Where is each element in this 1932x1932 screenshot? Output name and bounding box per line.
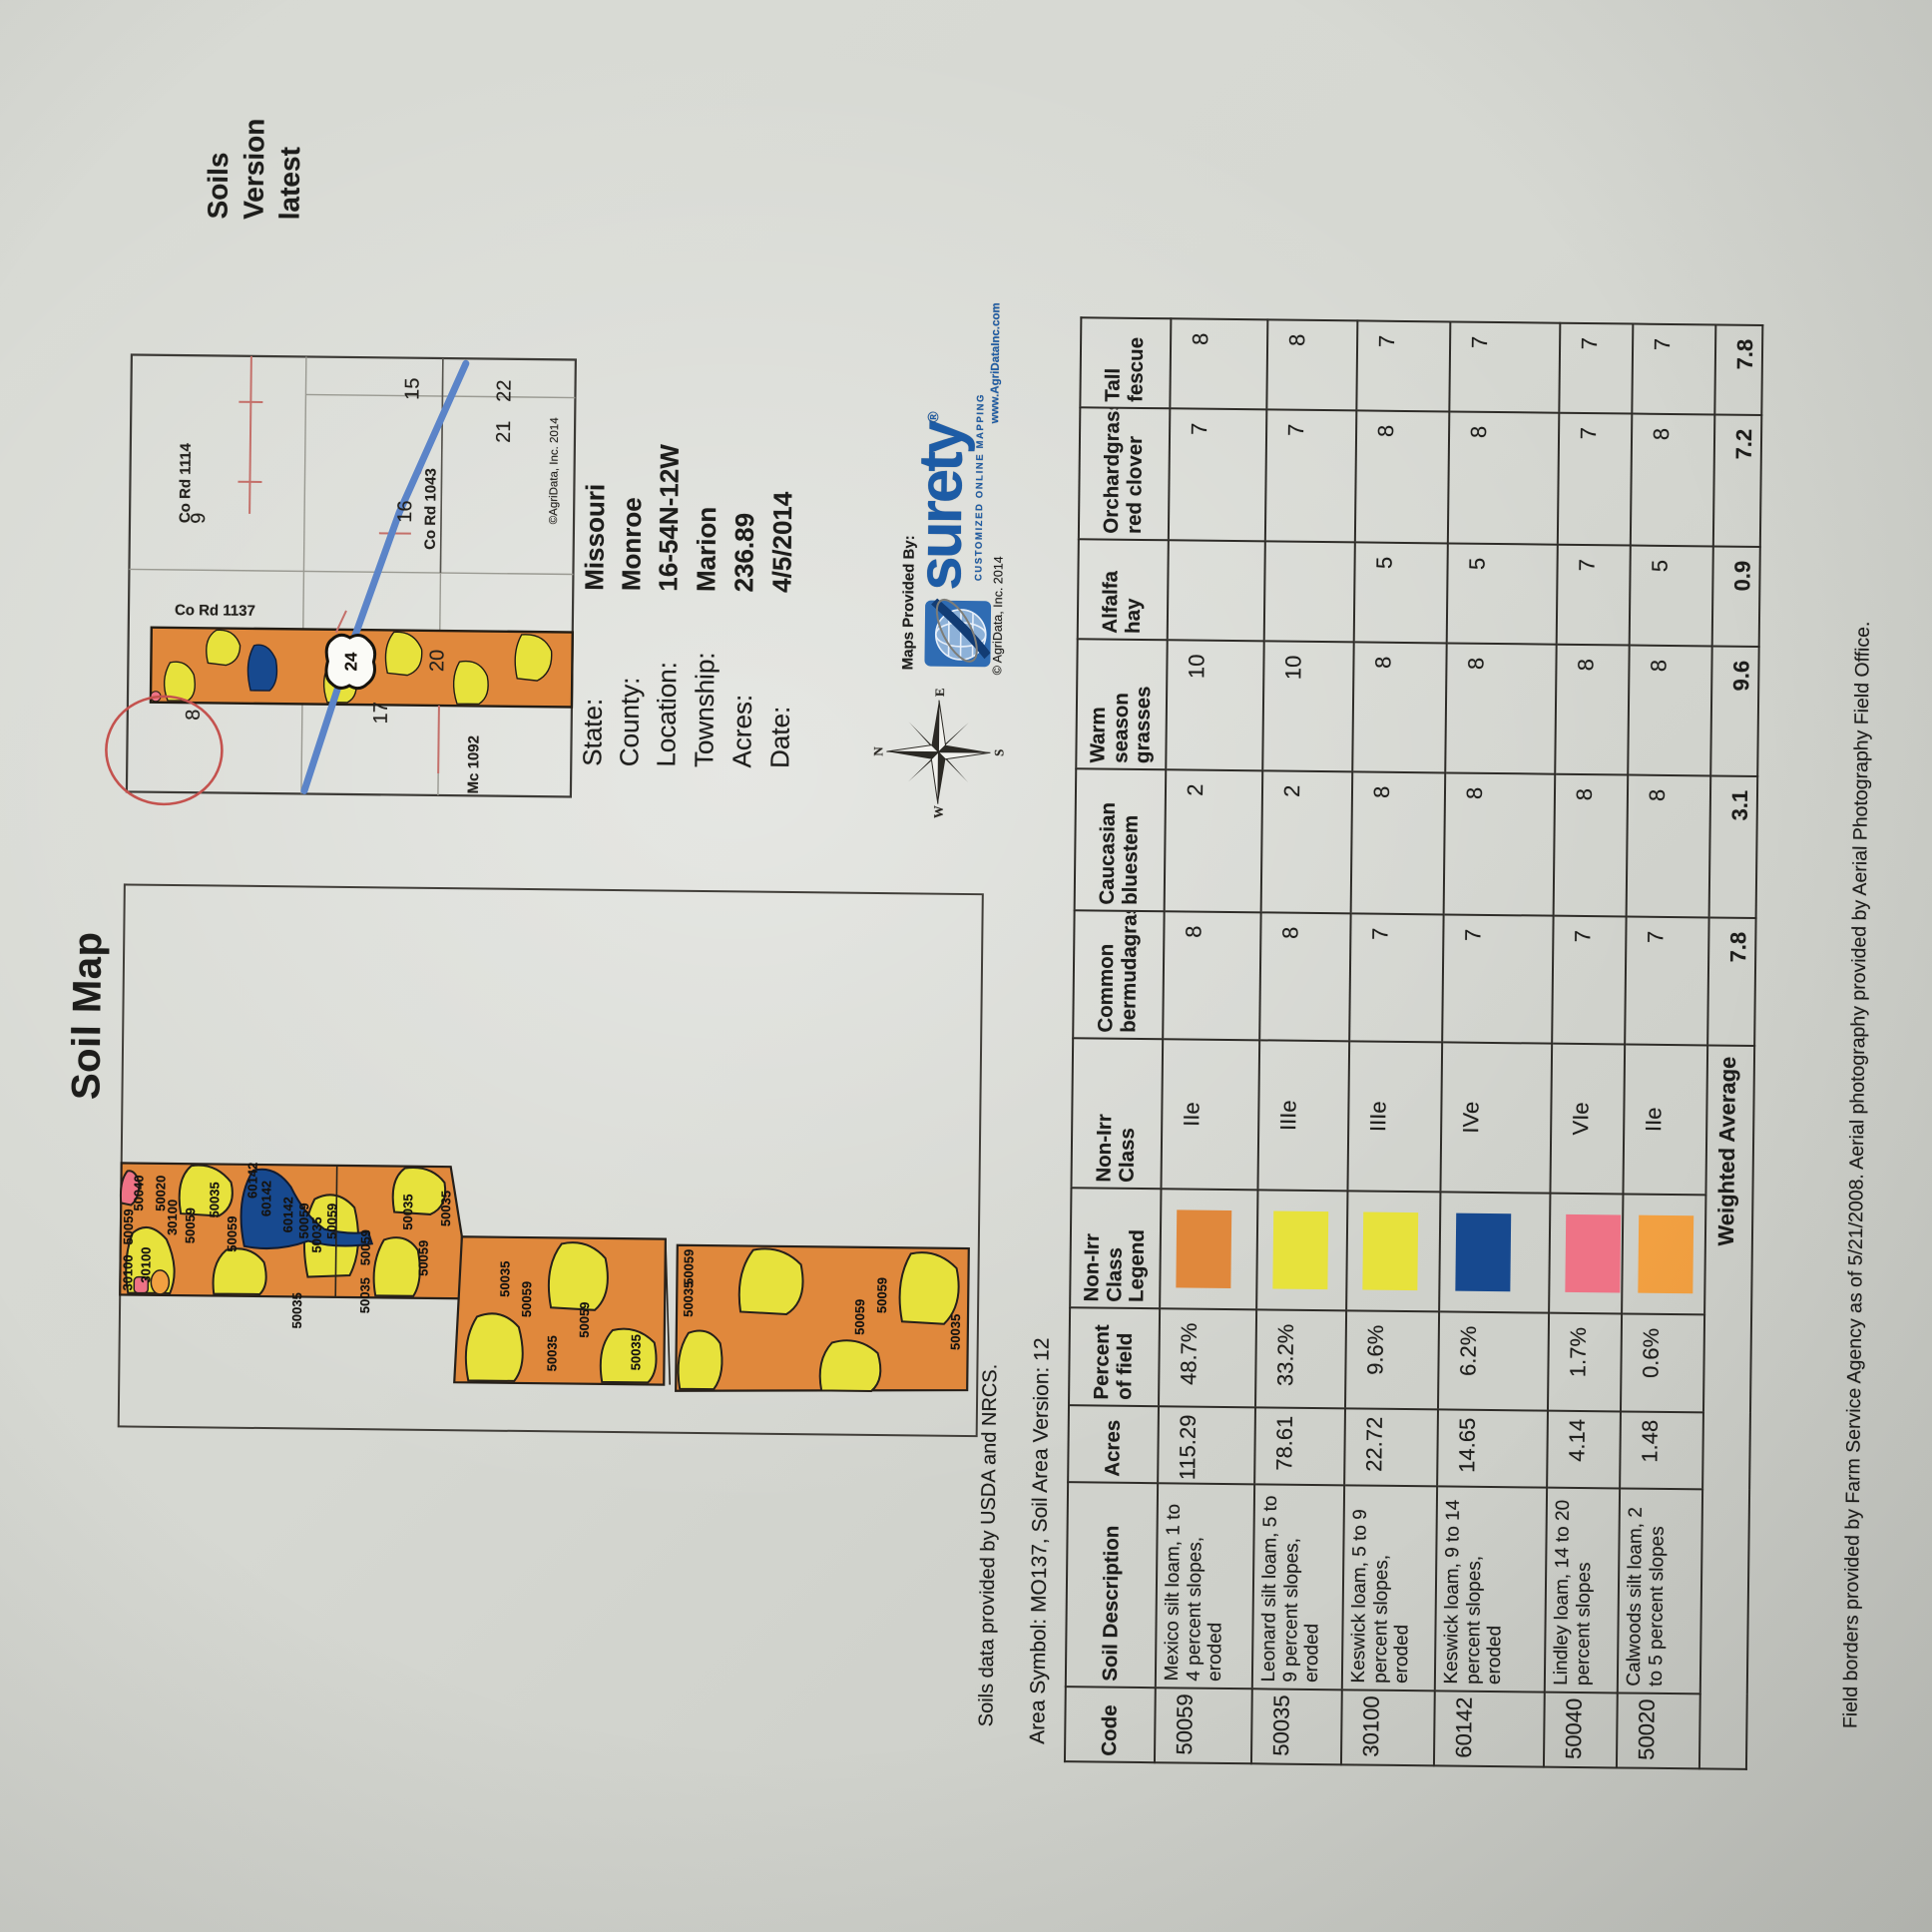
section-number: 8 — [183, 710, 205, 721]
road-label-co-rd-1114: Co Rd 1114 — [177, 442, 195, 523]
column-header: Tall fescue — [1080, 317, 1171, 408]
info-value: 16-54N-12W — [653, 444, 686, 592]
table-cell: 8 — [1352, 642, 1446, 772]
table-cell — [1264, 541, 1355, 642]
table-cell: 8 — [1444, 772, 1556, 915]
table-cell: 8 — [1631, 414, 1714, 547]
table-cell: 33.2% — [1255, 1309, 1346, 1408]
table-row: 60142Keswick loam, 9 to 14 percent slope… — [1434, 321, 1560, 1766]
soil-code-label: 50059 — [415, 1240, 430, 1276]
table-cell: Leonard silt loam, 5 to 9 percent slopes… — [1252, 1484, 1344, 1690]
table-cell: 8 — [1555, 645, 1629, 775]
section-number: 17 — [370, 702, 392, 724]
table-cell: Keswick loam, 5 to 9 percent slopes, ero… — [1342, 1485, 1437, 1690]
page-title: Soil Map — [64, 931, 111, 1100]
soil-code-label: 50059 — [324, 1204, 339, 1239]
table-cell: 7 — [1625, 917, 1708, 1046]
compass-w: W — [931, 805, 946, 818]
compass-star — [886, 700, 991, 804]
table-cell: 7 — [1559, 323, 1633, 414]
table-cell: 8 — [1170, 318, 1267, 409]
table-cell: IVe — [1440, 1042, 1552, 1193]
soil-code-label: 50059 — [577, 1301, 592, 1337]
table-row: 50059Mexico silt loam, 1 to 4 percent sl… — [1155, 318, 1267, 1763]
weighted-average-value: 9.6 — [1710, 646, 1758, 776]
agridata-copyright: © AgriData, Inc. 2014 — [990, 556, 1005, 675]
info-value: Marion — [691, 507, 723, 593]
highway-24-shield: 24 — [326, 635, 375, 689]
table-cell: 7 — [1449, 321, 1560, 412]
road-label-co-rd-1043: Co Rd 1043 — [422, 468, 440, 550]
locator-copyright: ©AgriData, Inc. 2014 — [548, 417, 561, 525]
table-cell: Mexico silt loam, 1 to 4 percent slopes,… — [1156, 1483, 1254, 1689]
table-cell: 5 — [1354, 542, 1448, 643]
header-line-soils: Soils — [200, 118, 237, 220]
soil-map-box: 3010050059500403010050020301005005950035… — [118, 883, 984, 1437]
legend-color-chip — [1455, 1213, 1511, 1292]
soil-map-field: 3010050059500403010050020301005005950035… — [117, 884, 983, 1438]
soil-map-document: Soil Map Soils Version latest — [0, 0, 1932, 1932]
legend-color-chip — [1362, 1212, 1418, 1291]
compass-s: S — [991, 749, 1005, 756]
column-header: Caucasian bluestem — [1075, 768, 1167, 911]
table-cell: IIIe — [1347, 1041, 1442, 1192]
table-cell: 7 — [1552, 916, 1626, 1045]
table-cell: 8 — [1445, 643, 1556, 773]
legend-color-cell — [1549, 1194, 1623, 1314]
surety-tagline: CUSTOMIZED ONLINE MAPPING — [973, 393, 986, 581]
soil-code-label: 50035 — [497, 1261, 512, 1297]
info-value: 236.89 — [728, 513, 760, 593]
info-label: County: — [614, 677, 645, 766]
column-header: Non-Irr Class Legend — [1070, 1188, 1161, 1308]
svg-text:24: 24 — [341, 652, 360, 672]
info-value: Monroe — [616, 497, 648, 591]
table-cell: 8 — [1448, 411, 1559, 544]
info-label: State: — [577, 699, 608, 766]
weighted-average-value: 7.8 — [1707, 917, 1755, 1046]
soil-code-label: 50035 — [681, 1281, 696, 1317]
soil-code-label: 50059 — [874, 1277, 889, 1313]
header-line-latest: latest — [271, 119, 308, 221]
road-label-mc-1092: Mc 1092 — [465, 735, 483, 794]
info-label: Acres: — [726, 695, 757, 768]
column-header: Soil Description — [1066, 1482, 1158, 1688]
table-cell: 7 — [1265, 409, 1356, 542]
section-number: 16 — [394, 500, 416, 522]
soils-version-header: Soils Version latest — [200, 118, 308, 220]
legend-color-chip — [1565, 1214, 1621, 1293]
weighted-average-value: 0.9 — [1712, 546, 1760, 647]
soil-code-label: 50059 — [358, 1229, 373, 1265]
compass-n: N — [872, 746, 886, 756]
table-cell — [1168, 540, 1265, 641]
table-cell: 1.7% — [1548, 1313, 1622, 1412]
soil-code-label: 50035 — [289, 1292, 304, 1328]
weighted-average-value: 3.1 — [1709, 775, 1758, 918]
column-header: Percent of field — [1069, 1307, 1160, 1406]
column-header: Common bermudagrass — [1073, 910, 1164, 1039]
table-cell: 115.29 — [1158, 1406, 1255, 1484]
soil-code-label: 50059 — [519, 1281, 534, 1317]
soil-code-label: 50059 — [852, 1299, 867, 1335]
table-cell: 6.2% — [1438, 1311, 1549, 1410]
table-cell: 7 — [1349, 913, 1443, 1042]
table-cell: 4.14 — [1547, 1411, 1621, 1489]
table-cell: 8 — [1627, 775, 1711, 918]
soil-code-label: 50035 — [207, 1182, 222, 1217]
table-cell: 8 — [1554, 774, 1629, 917]
table-cell: 2 — [1261, 770, 1353, 913]
soils-data-note: Soils data provided by USDA and NRCS. — [975, 1364, 1002, 1727]
soil-code-label: 50035 — [309, 1216, 324, 1252]
weighted-average-value: 7.8 — [1714, 324, 1762, 415]
soil-code-label: 50035 — [948, 1314, 963, 1350]
table-cell: Calwoods silt loam, 2 to 5 percent slope… — [1618, 1488, 1702, 1693]
table-cell: 8 — [1266, 319, 1357, 410]
column-header: Acres — [1068, 1405, 1159, 1483]
soil-code-label: 50035 — [544, 1335, 559, 1371]
soil-code-label: 50040 — [131, 1175, 146, 1210]
info-value: 4/5/2014 — [766, 491, 798, 593]
locator-map-svg: 24 Co Rd 1114 Co Rd 1137 Co Rd 1043 Mc 1… — [86, 340, 591, 835]
column-header: Code — [1065, 1687, 1156, 1762]
table-cell: 50059 — [1155, 1688, 1252, 1763]
red-circle-annotation — [106, 696, 223, 804]
table-cell: IIe — [1161, 1039, 1259, 1190]
table-cell: 50020 — [1617, 1692, 1700, 1768]
photo-of-document: Soil Map Soils Version latest — [0, 0, 1932, 1932]
road-label-co-rd-1137: Co Rd 1137 — [175, 602, 255, 620]
table-cell: 50035 — [1251, 1689, 1342, 1764]
table-cell: 5 — [1630, 546, 1713, 647]
table-cell: Lindley loam, 14 to 20 percent slopes — [1545, 1488, 1620, 1693]
soil-code-label: 50059 — [183, 1207, 198, 1243]
header-line-version: Version — [236, 118, 272, 220]
weighted-average-label: Weighted Average — [1699, 1045, 1754, 1768]
table-cell: 7 — [1356, 320, 1450, 411]
surety-wordmark: surety® — [901, 411, 973, 591]
soil-code-label: 50035 — [357, 1277, 372, 1313]
table-cell: 1.48 — [1620, 1411, 1703, 1489]
table-cell: 5 — [1447, 543, 1558, 644]
column-header: Warm season grasses — [1076, 639, 1167, 769]
soils-table-body: 50059Mexico silt loam, 1 to 4 percent sl… — [1155, 318, 1762, 1769]
table-cell: 48.7% — [1159, 1308, 1256, 1407]
legend-color-cell — [1346, 1191, 1440, 1311]
soil-code-label: 30100 — [120, 1254, 135, 1290]
table-cell: Keswick loam, 9 to 14 percent slopes, er… — [1435, 1486, 1547, 1691]
table-cell: IIe — [1623, 1044, 1707, 1195]
soil-code-label: 50059 — [121, 1208, 136, 1244]
table-cell: 7 — [1557, 545, 1631, 646]
info-label: Location: — [651, 662, 682, 767]
soil-code-label: 50035 — [438, 1191, 453, 1226]
soil-code-label: 60142 — [258, 1181, 273, 1216]
legend-color-cell — [1439, 1192, 1550, 1312]
table-cell: 78.61 — [1254, 1407, 1345, 1485]
info-label: Township: — [689, 652, 720, 767]
table-cell: IIIe — [1257, 1040, 1349, 1191]
table-cell: 8 — [1259, 912, 1350, 1041]
table-cell: 7 — [1442, 914, 1553, 1043]
table-cell: 8 — [1351, 771, 1446, 914]
locator-map: 24 Co Rd 1114 Co Rd 1137 Co Rd 1043 Mc 1… — [86, 340, 591, 835]
legend-color-cell — [1622, 1194, 1705, 1314]
info-label: Date: — [764, 707, 795, 768]
table-cell: 8 — [1355, 410, 1449, 543]
table-cell: 22.72 — [1344, 1408, 1438, 1486]
soil-code-label: 30100 — [138, 1246, 153, 1282]
column-header: Alfalfa hay — [1078, 539, 1169, 640]
legend-color-cell — [1160, 1189, 1257, 1309]
legend-color-chip — [1638, 1215, 1693, 1294]
table-cell: 10 — [1166, 640, 1263, 770]
table-cell: 2 — [1165, 769, 1263, 912]
table-cell: 10 — [1262, 641, 1353, 771]
section-number: 9 — [188, 513, 210, 524]
table-cell: 14.65 — [1437, 1409, 1548, 1487]
table-cell: 30100 — [1341, 1690, 1435, 1765]
soils-table-header: CodeSoil DescriptionAcresPercent of fiel… — [1065, 317, 1171, 1762]
soil-code-label: 50035 — [400, 1194, 415, 1229]
soil-code-label: 50059 — [225, 1215, 240, 1251]
compass-rose: N E S W — [872, 686, 1005, 818]
legend-color-chip — [1272, 1211, 1328, 1290]
info-value: Missouri — [579, 484, 611, 591]
legend-color-chip — [1176, 1209, 1231, 1288]
table-cell: 60142 — [1434, 1690, 1545, 1766]
table-cell: 0.6% — [1621, 1313, 1704, 1412]
table-cell: 7 — [1169, 408, 1266, 541]
table-cell: 7 — [1632, 324, 1715, 415]
table-cell: 8 — [1628, 646, 1711, 776]
section-number: 20 — [426, 650, 448, 672]
area-symbol-line: Area Symbol: MO137, Soil Area Version: 1… — [1026, 1337, 1055, 1744]
table-cell: 50040 — [1544, 1692, 1618, 1768]
column-header: Non-Irr Class — [1071, 1038, 1163, 1189]
section-number: 22 — [493, 379, 515, 401]
table-row: 30100Keswick loam, 5 to 9 percent slopes… — [1341, 320, 1450, 1765]
table-row: 50035Leonard silt loam, 5 to 9 percent s… — [1251, 319, 1357, 1764]
legend-color-cell — [1256, 1190, 1347, 1310]
soil-code-label: 50059 — [681, 1249, 696, 1285]
section-number: 15 — [401, 377, 423, 399]
agridata-website: www.AgriDataInc.com — [989, 302, 1002, 423]
soil-code-label: 60142 — [280, 1197, 295, 1232]
table-cell: 9.6% — [1345, 1310, 1439, 1409]
table-cell: 8 — [1163, 911, 1260, 1040]
footer-note: Field borders provided by Farm Service A… — [1839, 621, 1875, 1728]
compass-e: E — [932, 688, 947, 697]
surety-globe-icon — [920, 594, 1000, 669]
surety-logo-block: Maps Provided By: surety® CUSTOMIZED ONL… — [894, 310, 1016, 681]
section-number: 21 — [493, 420, 515, 442]
soils-table: CodeSoil DescriptionAcresPercent of fiel… — [1064, 316, 1763, 1770]
table-cell: 7 — [1558, 413, 1632, 546]
column-header: Orchardgrass red clover — [1079, 407, 1170, 540]
weighted-average-value: 7.2 — [1713, 414, 1761, 547]
table-cell: VIe — [1550, 1044, 1625, 1195]
soil-code-label: 50035 — [628, 1334, 643, 1370]
soil-code-label: 30100 — [165, 1200, 180, 1235]
